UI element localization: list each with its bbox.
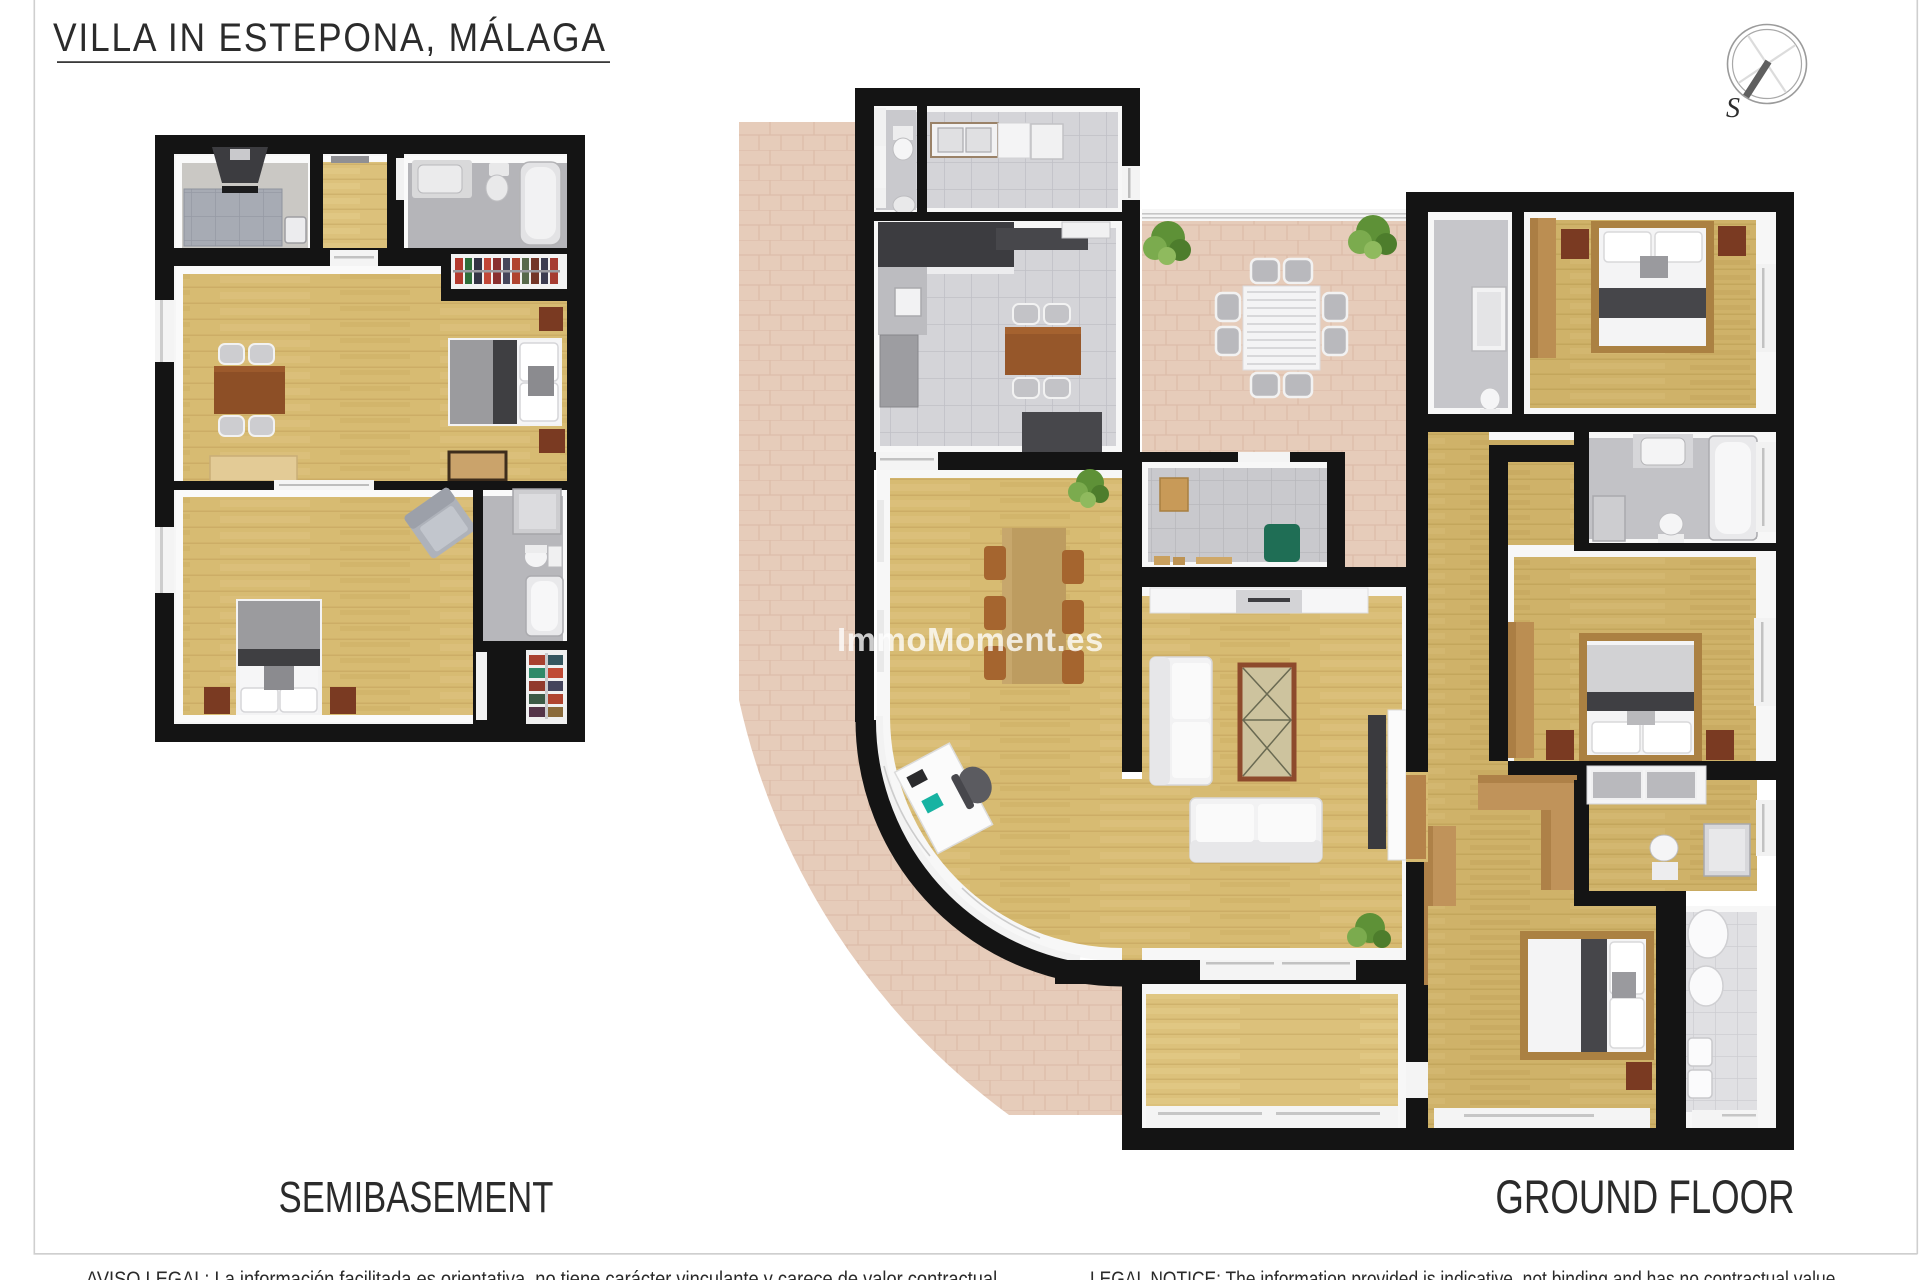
svg-text:GROUND FLOOR: GROUND FLOOR bbox=[1495, 1171, 1794, 1223]
svg-text:S: S bbox=[1726, 93, 1740, 124]
svg-text:LEGAL NOTICE: The information: LEGAL NOTICE: The information provided i… bbox=[1090, 1269, 1835, 1280]
svg-text:SEMIBASEMENT: SEMIBASEMENT bbox=[279, 1173, 554, 1222]
svg-text:VILLA IN ESTEPONA, MÁLAGA: VILLA IN ESTEPONA, MÁLAGA bbox=[53, 16, 607, 60]
svg-text:ImmoMoment.es: ImmoMoment.es bbox=[837, 621, 1104, 658]
svg-text:AVISO LEGAL: La información fa: AVISO LEGAL: La información facilitada e… bbox=[86, 1268, 997, 1280]
